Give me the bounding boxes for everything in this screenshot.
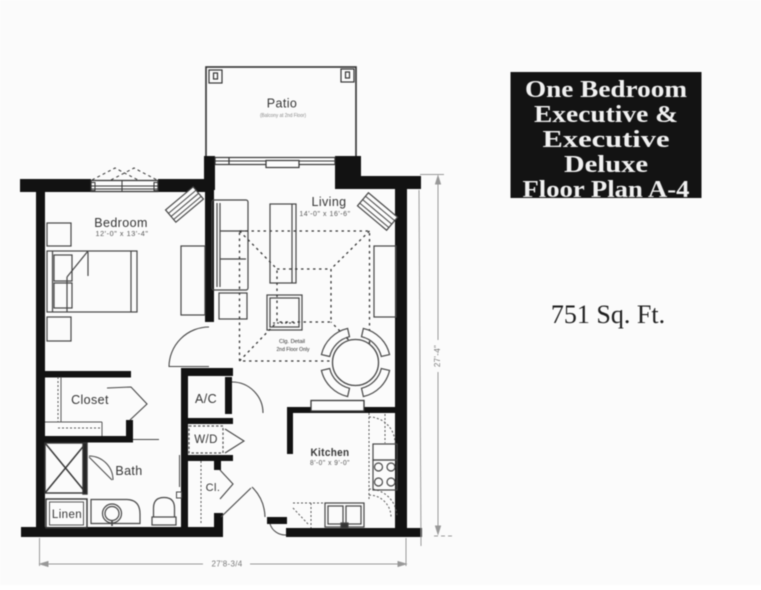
svg-text:W/D: W/D [194, 434, 218, 446]
svg-text:Floor Plan A-4: Floor Plan A-4 [523, 177, 690, 203]
svg-text:751 Sq. Ft.: 751 Sq. Ft. [551, 300, 665, 329]
svg-text:Deluxe: Deluxe [564, 152, 648, 178]
svg-text:14'-0" x 16'-6": 14'-0" x 16'-6" [299, 211, 350, 218]
svg-text:A/C: A/C [195, 392, 217, 406]
svg-text:Linen: Linen [52, 509, 82, 521]
svg-text:(Balcony at 2nd Floor): (Balcony at 2nd Floor) [260, 113, 306, 119]
svg-text:2nd Floor Only: 2nd Floor Only [277, 347, 310, 353]
svg-text:27'8-3/4: 27'8-3/4 [211, 560, 242, 569]
svg-text:Cl.: Cl. [206, 482, 221, 494]
svg-text:Kitchen: Kitchen [311, 447, 350, 459]
svg-text:8'-0" x 9'-0": 8'-0" x 9'-0" [310, 460, 350, 467]
svg-text:27'-4": 27'-4" [433, 345, 442, 367]
svg-text:Bedroom: Bedroom [94, 216, 148, 230]
svg-text:Bath: Bath [115, 464, 142, 478]
svg-text:Patio: Patio [267, 97, 298, 111]
svg-text:Clg. Detail: Clg. Detail [279, 339, 305, 345]
svg-text:Closet: Closet [71, 393, 109, 407]
svg-text:Executive &: Executive & [534, 102, 678, 128]
svg-text:One Bedroom: One Bedroom [525, 77, 687, 103]
svg-text:Living: Living [311, 195, 346, 209]
svg-text:Executive: Executive [543, 127, 670, 153]
svg-text:12'-0" x 13'-4": 12'-0" x 13'-4" [96, 231, 149, 238]
